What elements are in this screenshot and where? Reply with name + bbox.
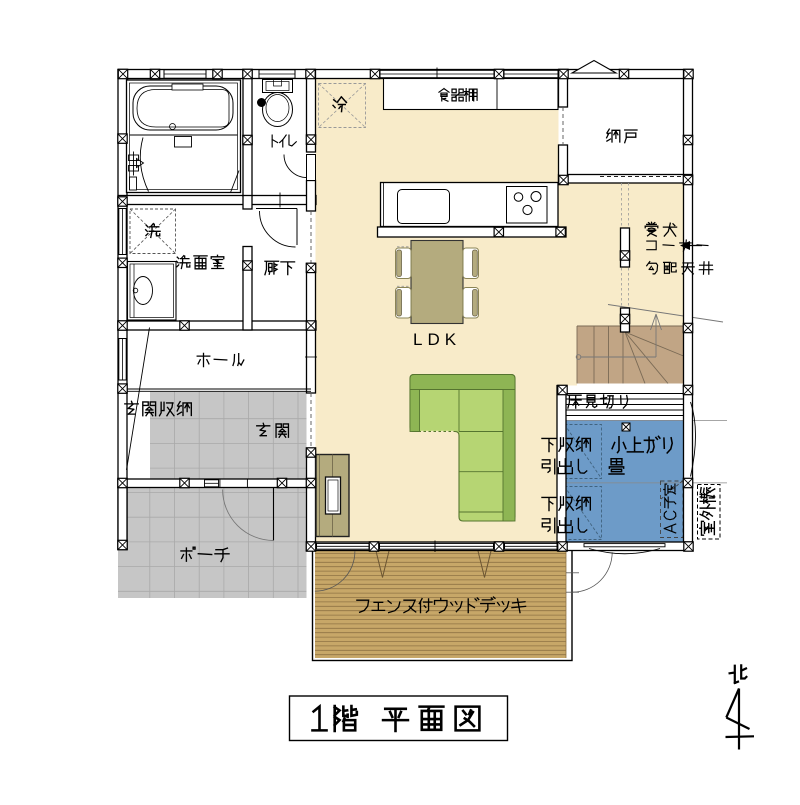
svg-text:LDK: LDK xyxy=(413,330,461,349)
